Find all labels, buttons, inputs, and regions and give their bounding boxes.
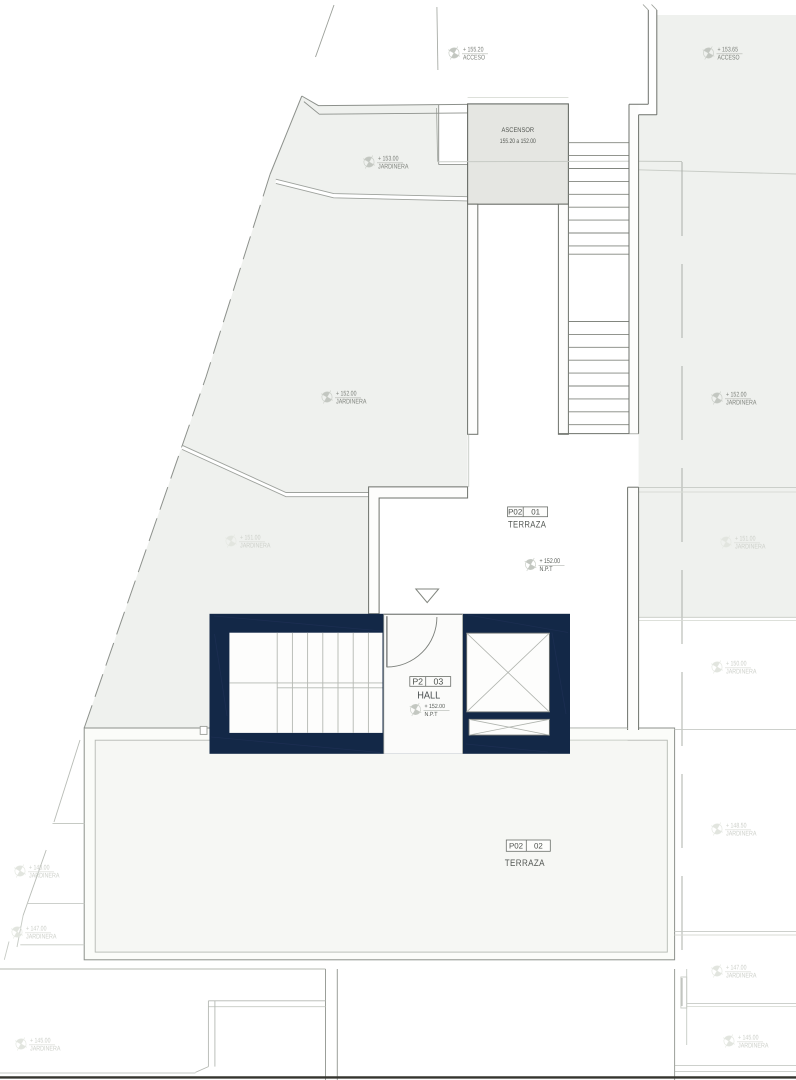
- svg-text:155.20 a 152.00: 155.20 a 152.00: [500, 138, 536, 145]
- svg-text:TERRAZA: TERRAZA: [508, 519, 546, 530]
- svg-text:JARDINERA: JARDINERA: [26, 934, 57, 941]
- svg-text:+ 147.00: + 147.00: [726, 965, 747, 972]
- svg-text:+ 151.00: + 151.00: [240, 535, 261, 542]
- svg-text:JARDINERA: JARDINERA: [30, 1046, 61, 1053]
- svg-text:JARDINERA: JARDINERA: [336, 399, 367, 406]
- svg-text:JARDINERA: JARDINERA: [738, 1043, 769, 1050]
- svg-text:+ 145.00: + 145.00: [30, 1038, 51, 1045]
- svg-text:P02: P02: [509, 842, 523, 851]
- svg-text:JARDINERA: JARDINERA: [378, 164, 409, 171]
- svg-text:03: 03: [434, 677, 444, 687]
- svg-text:+ 152.00: + 152.00: [336, 391, 357, 398]
- svg-text:ASCENSOR: ASCENSOR: [502, 127, 535, 134]
- svg-text:+ 148.50: + 148.50: [726, 823, 747, 830]
- svg-text:HALL: HALL: [417, 691, 440, 702]
- svg-text:JARDINERA: JARDINERA: [735, 544, 766, 551]
- svg-text:JARDINERA: JARDINERA: [726, 831, 757, 838]
- svg-text:+ 152.00: + 152.00: [540, 558, 561, 565]
- svg-text:+ 151.00: + 151.00: [735, 536, 756, 543]
- svg-text:TERRAZA: TERRAZA: [505, 858, 545, 869]
- svg-text:+ 150.00: + 150.00: [726, 661, 747, 668]
- svg-text:+ 155.20: + 155.20: [463, 47, 484, 54]
- svg-text:JARDINERA: JARDINERA: [240, 543, 271, 550]
- svg-text:JARDINERA: JARDINERA: [29, 873, 60, 880]
- svg-text:+ 152.00: + 152.00: [425, 703, 446, 710]
- svg-text:+ 153.65: + 153.65: [718, 47, 739, 54]
- svg-text:01: 01: [531, 507, 540, 516]
- svg-text:JARDINERA: JARDINERA: [726, 669, 757, 676]
- svg-text:ACCESO: ACCESO: [463, 55, 485, 62]
- svg-text:ACCESO: ACCESO: [718, 55, 740, 62]
- svg-text:+ 153.00: + 153.00: [378, 156, 399, 163]
- svg-text:P2: P2: [412, 677, 423, 687]
- svg-text:+ 147.00: + 147.00: [26, 926, 47, 933]
- svg-text:02: 02: [534, 842, 543, 851]
- svg-text:N.P.T: N.P.T: [425, 711, 438, 718]
- svg-text:+ 152.00: + 152.00: [726, 392, 747, 399]
- svg-text:JARDINERA: JARDINERA: [726, 400, 757, 407]
- svg-text:JARDINERA: JARDINERA: [726, 973, 757, 980]
- svg-text:N.P.T: N.P.T: [540, 566, 553, 573]
- svg-text:+ 145.00: + 145.00: [738, 1035, 759, 1042]
- svg-text:P02: P02: [508, 507, 522, 516]
- svg-text:+ 148.00: + 148.00: [29, 865, 50, 872]
